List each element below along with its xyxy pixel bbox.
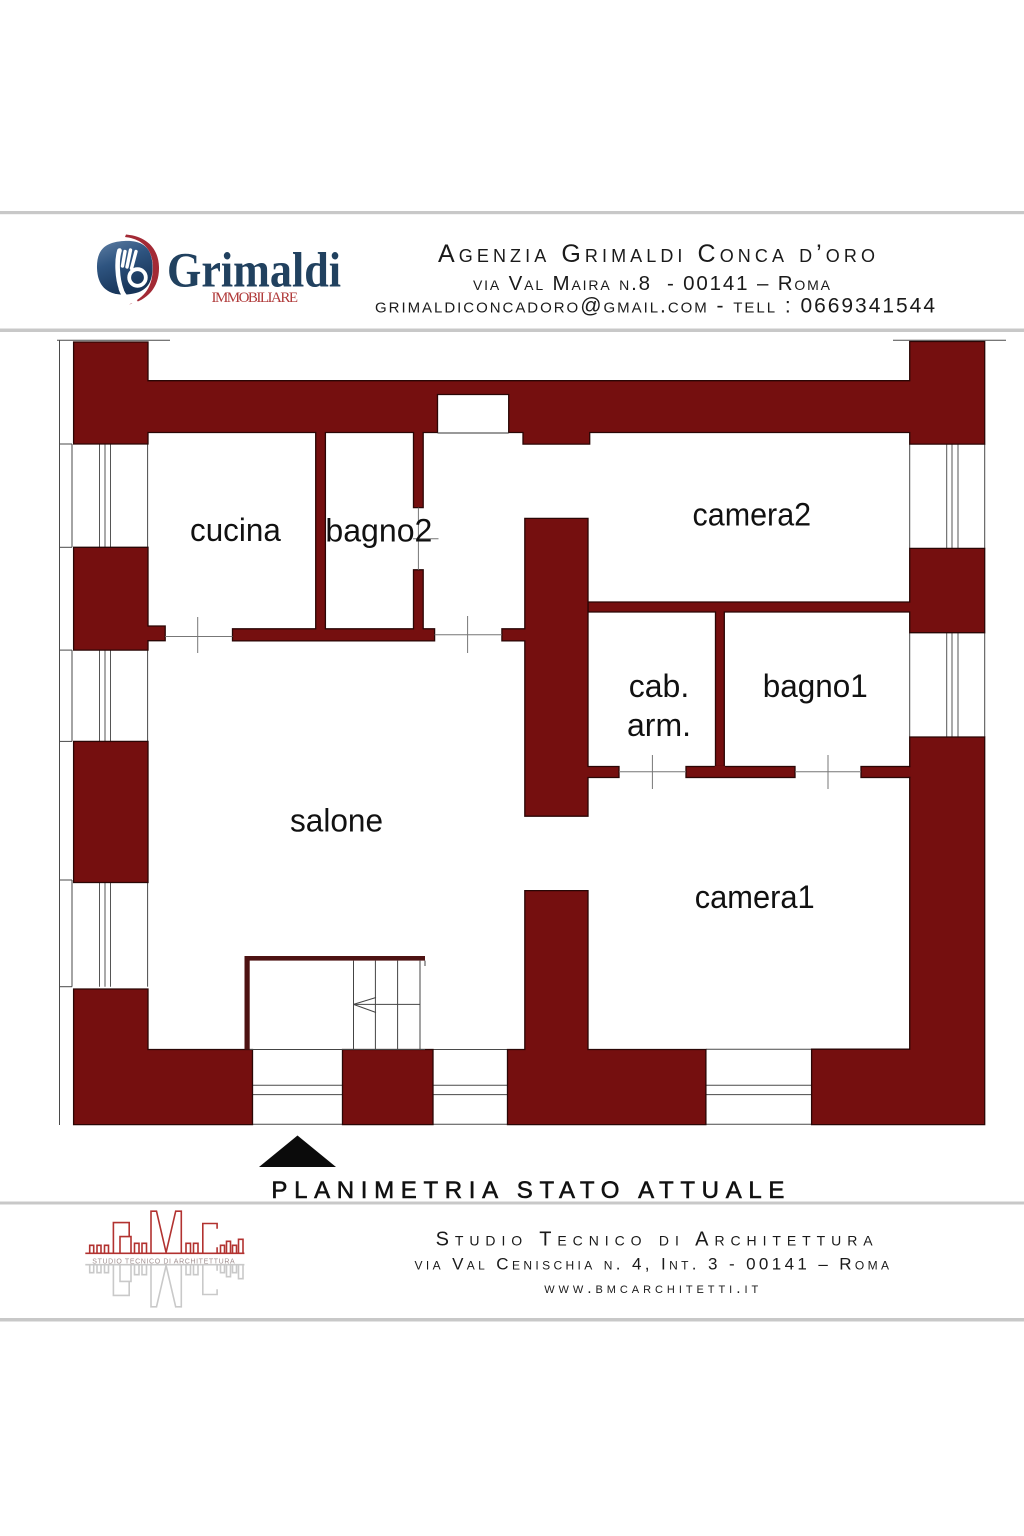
svg-text:arm.: arm. (627, 707, 691, 743)
svg-text:cab.: cab. (629, 668, 689, 704)
svg-text:camera2: camera2 (693, 496, 812, 532)
svg-text:STUDIO TECNICO DI ARCHITETTURA: STUDIO TECNICO DI ARCHITETTURA (92, 1259, 235, 1266)
svg-text:bagno2: bagno2 (325, 513, 432, 549)
svg-text:bagno1: bagno1 (763, 668, 868, 704)
svg-text:via Val Maira n.8 - 00141 – R: via Val Maira n.8 - 00141 – Roma (473, 272, 831, 295)
svg-text:salone: salone (290, 802, 383, 838)
svg-text:cucina: cucina (190, 512, 281, 548)
svg-text:camera1: camera1 (695, 879, 815, 915)
svg-text:PLANIMETRIA STATO ATTUALE: PLANIMETRIA STATO ATTUALE (271, 1177, 784, 1204)
svg-text:IMMOBILIARE: IMMOBILIARE (212, 290, 299, 306)
svg-text:grimaldiconcadoro@gmail.com -: grimaldiconcadoro@gmail.com - tell : 066… (375, 295, 935, 318)
